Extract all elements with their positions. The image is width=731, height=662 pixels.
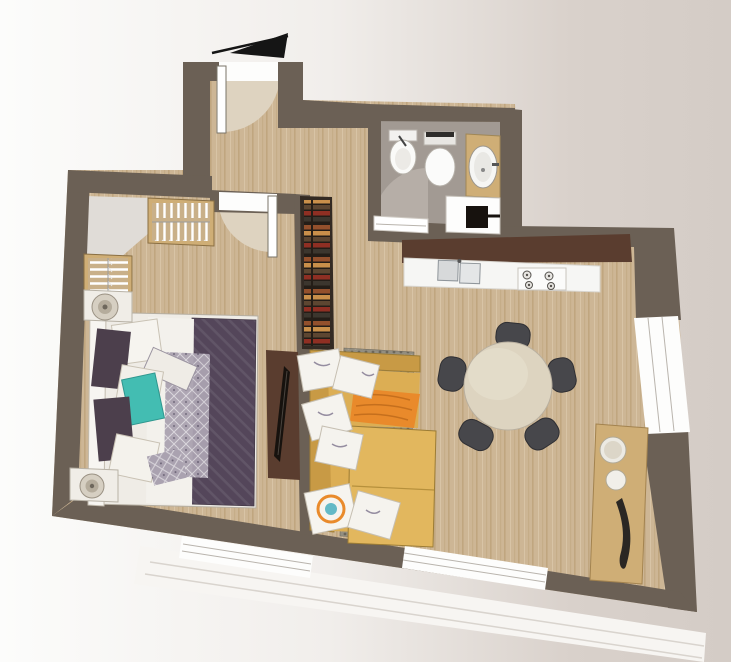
nightstand-north: nightstand with lamp [84,290,132,322]
washbasin: washbasin on counter [466,134,500,198]
wall-bathroom-west [368,120,381,232]
sideboard: sideboard with decor [590,424,648,584]
decor-bowl-icon [606,470,626,490]
toilet: toilet [424,132,456,186]
wall-entrance-right [278,62,303,128]
nightstand-south: nightstand with lamp [70,468,118,502]
washing-machine: washing machine [446,196,500,234]
corner-sofa: corner sofa with cushions orange throw b… [297,349,436,547]
bedroom-door-leaf [268,196,277,257]
cooktop: cooktop [518,268,566,290]
bathroom-door: bathroom door with swing [374,216,428,233]
wardrobe-north: wardrobe with hangers [148,198,214,246]
bidet: bidet [389,130,417,174]
bookshelf: bookshelf [300,196,334,350]
floor-plan-image: terrace edge area rug wall TV panel [0,0,731,662]
entry-door-leaf [217,66,226,133]
wall-bathroom-east [500,108,522,232]
tv-panel: wall TV panel [266,350,300,480]
wall-step-north [303,100,370,128]
